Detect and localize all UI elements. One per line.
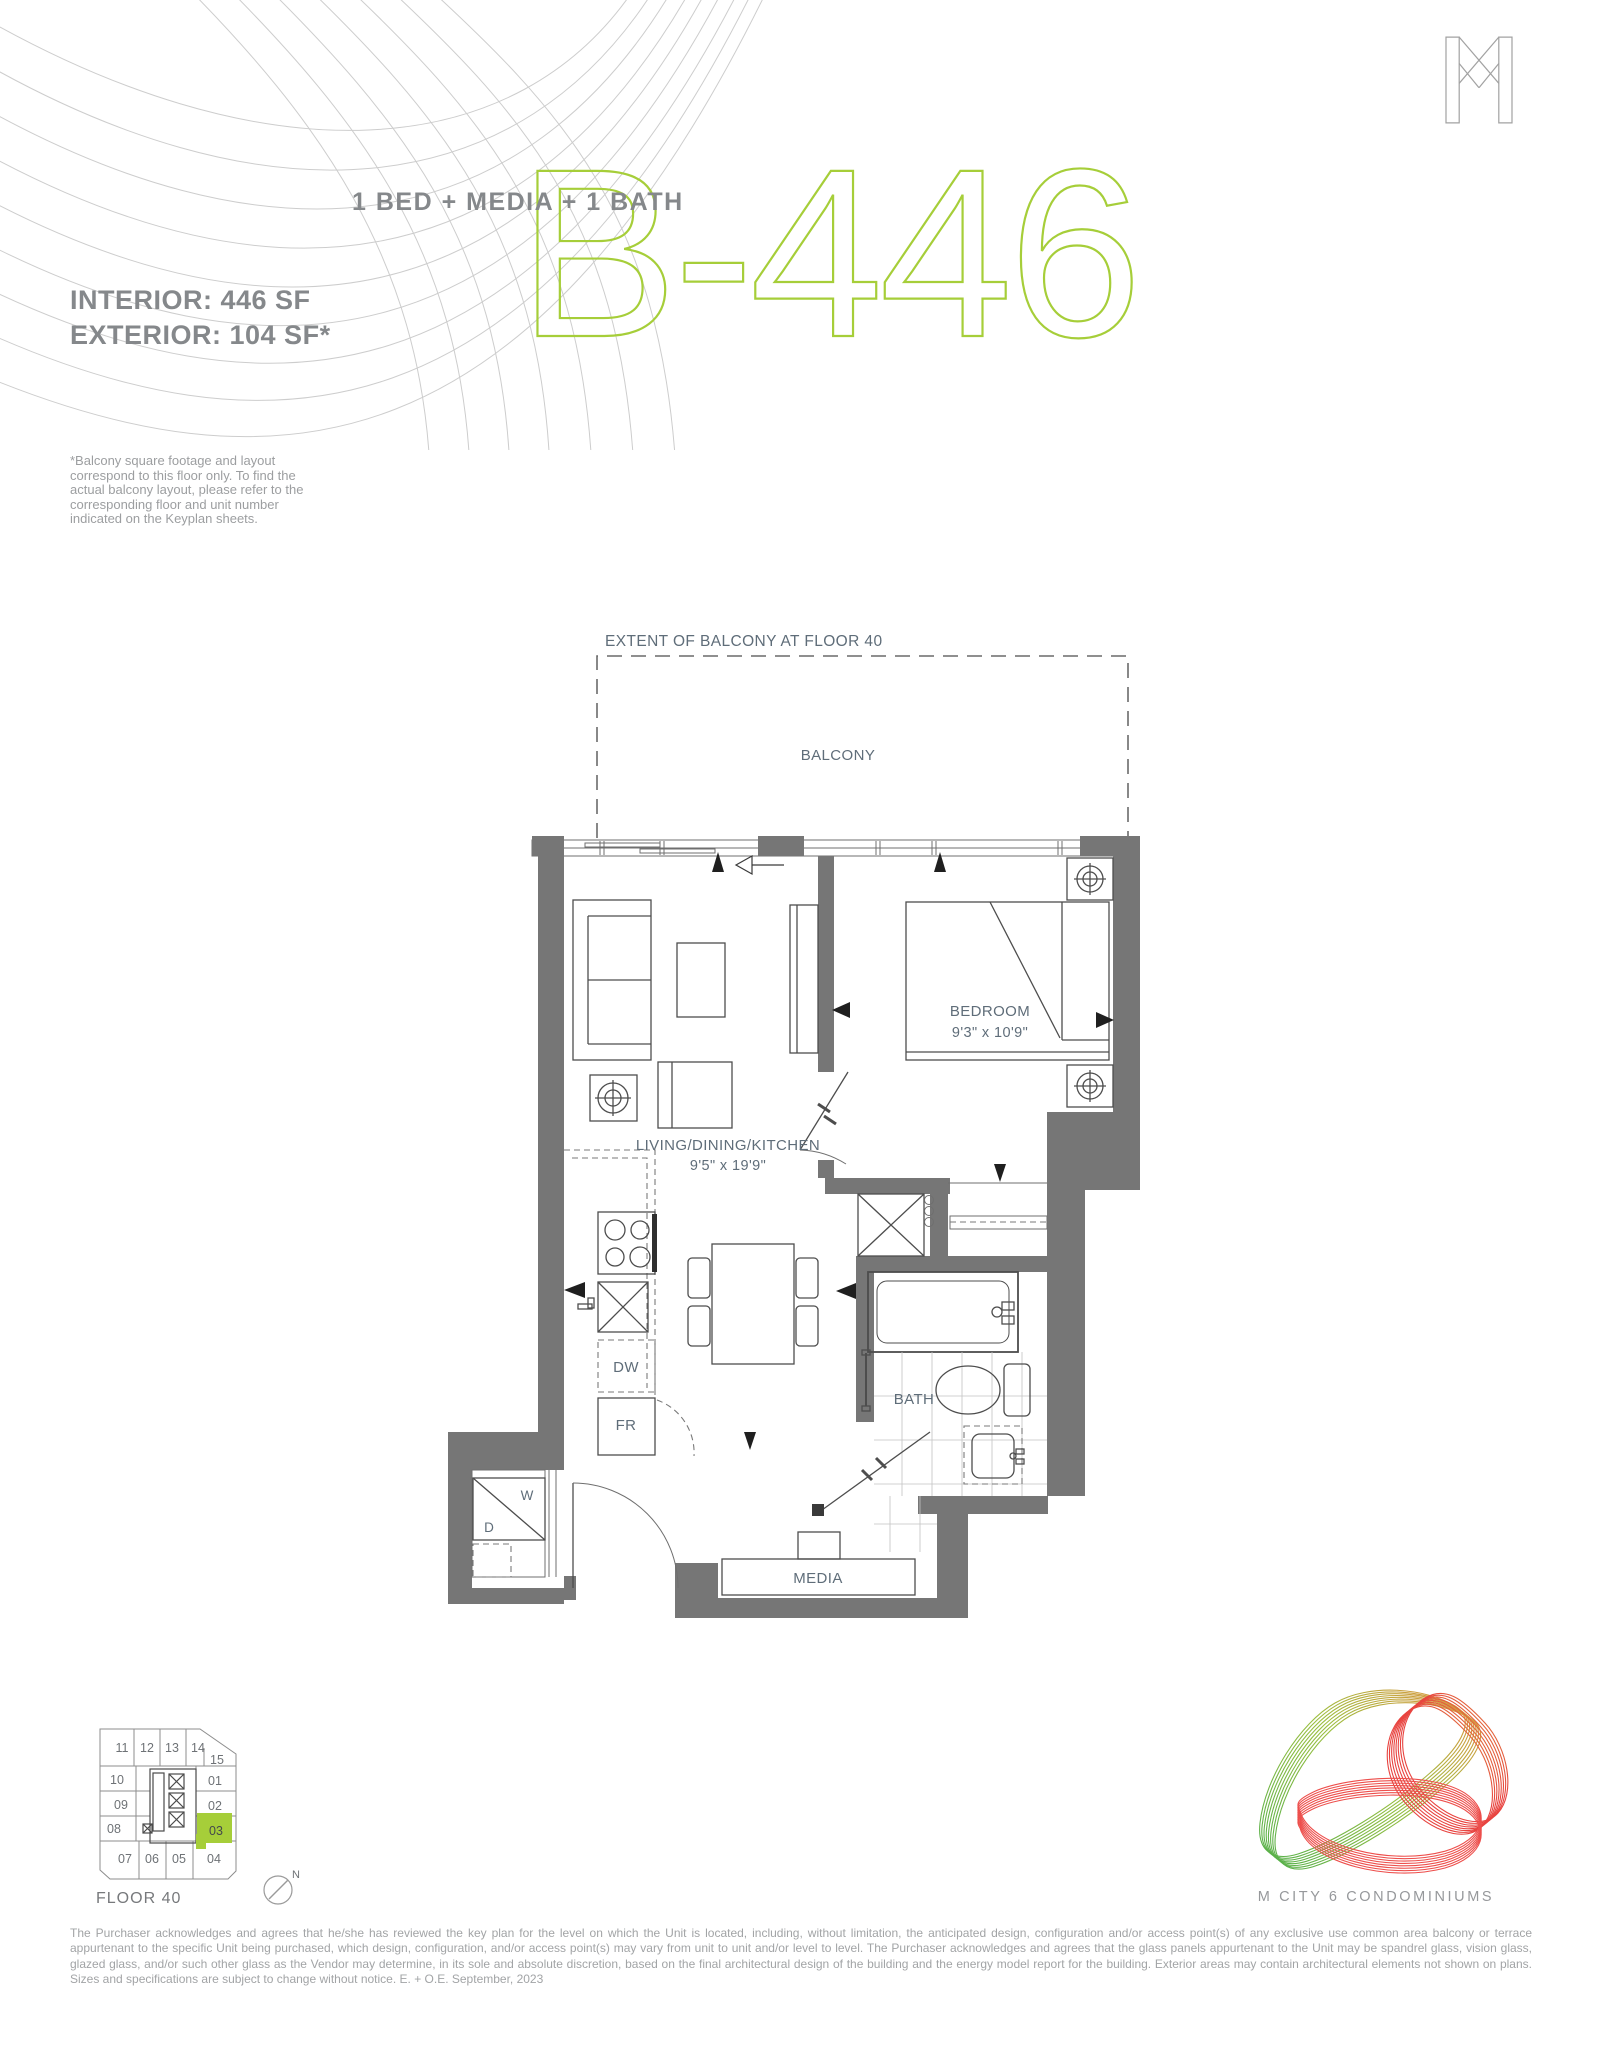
living-dim: 9'5" x 19'9" [690,1158,766,1174]
compass-icon: N [264,1869,300,1904]
unit-04: 04 [207,1852,221,1866]
tv-console [790,905,818,1053]
dw-label: DW [613,1359,639,1376]
entry-door [573,1483,678,1588]
unit-14: 14 [191,1741,205,1755]
fr-label: FR [616,1417,637,1434]
washer-label: W [521,1488,534,1503]
interior-sf: INTERIOR: 446 SF [70,283,331,318]
balcony-footnote: *Balcony square footage and layout corre… [70,454,306,527]
mcity-logo-title: M CITY 6 CONDOMINIUMS [1240,1889,1512,1905]
unit-10: 10 [110,1773,124,1787]
fridge [598,1398,694,1456]
plan-labels: EXTENT OF BALCONY AT FLOOR 40 BALCONY BE… [484,633,1030,1587]
mcity-logo [1240,1658,1512,1883]
m-logo-icon [1444,36,1514,124]
unit-type-label: 1 BED + MEDIA + 1 BATH [352,188,684,217]
linen-closet [858,1194,934,1256]
bedroom-closet [948,1183,1047,1229]
unit-05: 05 [172,1852,186,1866]
unit-code-text: B-446 [518,119,1138,387]
unit-01: 01 [208,1774,222,1788]
unit-11: 11 [116,1741,129,1755]
vanity-sink [964,1426,1024,1484]
bedroom-dim: 9'3" x 10'9" [952,1025,1028,1041]
kitchen-sink [578,1282,648,1332]
lounge-chair [658,1062,732,1128]
kitchen-counter [564,1150,655,1395]
toilet [936,1364,1030,1416]
bedroom-label: BEDROOM [950,1003,1030,1020]
unit-13: 13 [165,1741,179,1755]
unit-06: 06 [145,1852,159,1866]
keyplan-core [143,1769,196,1843]
legal-disclaimer: The Purchaser acknowledges and agrees th… [70,1926,1532,1988]
nightstand-light-bottom [1067,1065,1113,1107]
unit-08: 08 [107,1822,121,1836]
keyplan: 11 12 13 14 15 10 01 09 02 08 03 07 06 0… [90,1715,315,1910]
media-label: MEDIA [793,1570,843,1587]
bath-label: BATH [894,1391,935,1408]
square-footage: INTERIOR: 446 SF EXTERIOR: 104 SF* [70,283,331,353]
bath-door [812,1432,930,1516]
window-wall [532,840,1113,856]
unit-03-highlighted: 03 [209,1824,223,1838]
exterior-sf: EXTERIOR: 104 SF* [70,318,331,353]
unit-15: 15 [210,1753,224,1767]
balcony-label: BALCONY [801,747,876,764]
unit-09: 09 [114,1798,128,1812]
stove [598,1212,657,1274]
unit-02: 02 [208,1799,222,1813]
dining-table [688,1244,818,1364]
coffee-table [677,943,725,1017]
extent-label: EXTENT OF BALCONY AT FLOOR 40 [605,633,882,650]
nightstand-light-top [1067,858,1113,900]
floor-label: FLOOR 40 [96,1890,181,1907]
living-label: LIVING/DINING/KITCHEN [636,1137,820,1154]
compass-n-label: N [292,1869,300,1881]
unit-07: 07 [118,1852,132,1866]
unit-12: 12 [140,1741,154,1755]
walls [448,836,1140,1618]
bathtub [868,1272,1018,1352]
floorplan-sheet: { "header": { "unit_type": "1 BED + MEDI… [0,0,1600,2071]
floor-plan: EXTENT OF BALCONY AT FLOOR 40 BALCONY BE… [340,620,1140,1660]
side-table-light [590,1075,637,1121]
unit-code: B-446 [498,140,1158,355]
dryer-label: D [484,1520,494,1535]
sofa [573,900,651,1060]
